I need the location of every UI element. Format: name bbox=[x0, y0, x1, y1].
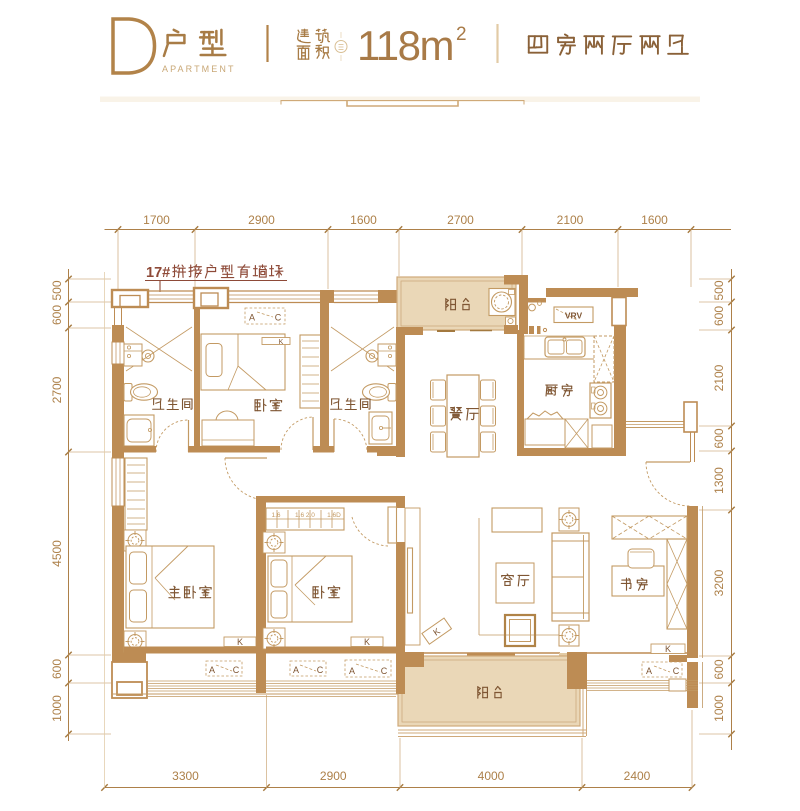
svg-text:500: 500 bbox=[50, 280, 64, 300]
svg-text:K: K bbox=[279, 339, 284, 346]
svg-text:K: K bbox=[364, 637, 370, 647]
svg-text:2400: 2400 bbox=[624, 769, 651, 783]
svg-text:600: 600 bbox=[50, 305, 64, 325]
svg-text:C: C bbox=[381, 666, 388, 676]
svg-text:1000: 1000 bbox=[50, 695, 64, 722]
svg-text:3200: 3200 bbox=[712, 569, 726, 596]
svg-text:1.6 2.0: 1.6 2.0 bbox=[295, 512, 315, 519]
svg-text:C: C bbox=[233, 665, 240, 675]
svg-text:A: A bbox=[209, 665, 215, 675]
svg-text:A: A bbox=[646, 666, 652, 676]
svg-text:600: 600 bbox=[712, 306, 726, 326]
svg-text:1600: 1600 bbox=[641, 213, 668, 227]
svg-text:1.6: 1.6 bbox=[271, 512, 280, 519]
svg-text:A: A bbox=[293, 665, 299, 675]
svg-text:3300: 3300 bbox=[172, 769, 199, 783]
svg-text:4500: 4500 bbox=[50, 540, 64, 567]
svg-text:C: C bbox=[317, 665, 324, 675]
svg-text:C: C bbox=[673, 666, 680, 676]
svg-text:K: K bbox=[665, 644, 671, 654]
svg-text:2700: 2700 bbox=[447, 213, 474, 227]
svg-text:500: 500 bbox=[712, 280, 726, 300]
svg-text:A: A bbox=[249, 313, 255, 323]
svg-text:1000: 1000 bbox=[712, 695, 726, 722]
svg-text:17#: 17# bbox=[146, 265, 170, 281]
svg-text:600: 600 bbox=[712, 428, 726, 448]
svg-text:2900: 2900 bbox=[320, 769, 347, 783]
svg-text:600: 600 bbox=[50, 659, 64, 679]
svg-text:2100: 2100 bbox=[557, 213, 584, 227]
svg-text:K: K bbox=[237, 637, 243, 647]
svg-text:1300: 1300 bbox=[712, 467, 726, 494]
svg-text:1600: 1600 bbox=[350, 213, 377, 227]
svg-text:1700: 1700 bbox=[143, 213, 170, 227]
svg-text:A: A bbox=[349, 666, 355, 676]
svg-text:2: 2 bbox=[456, 24, 467, 45]
svg-text:APARTMENT: APARTMENT bbox=[162, 64, 236, 74]
svg-text:2900: 2900 bbox=[248, 213, 275, 227]
svg-text:C: C bbox=[275, 313, 282, 323]
svg-text:VRV: VRV bbox=[565, 311, 583, 321]
svg-text:2700: 2700 bbox=[50, 376, 64, 403]
svg-text:1.6D: 1.6D bbox=[327, 512, 341, 519]
svg-text:600: 600 bbox=[712, 659, 726, 679]
svg-text:2100: 2100 bbox=[712, 364, 726, 391]
svg-text:118m: 118m bbox=[357, 22, 453, 69]
svg-text:4000: 4000 bbox=[478, 769, 505, 783]
